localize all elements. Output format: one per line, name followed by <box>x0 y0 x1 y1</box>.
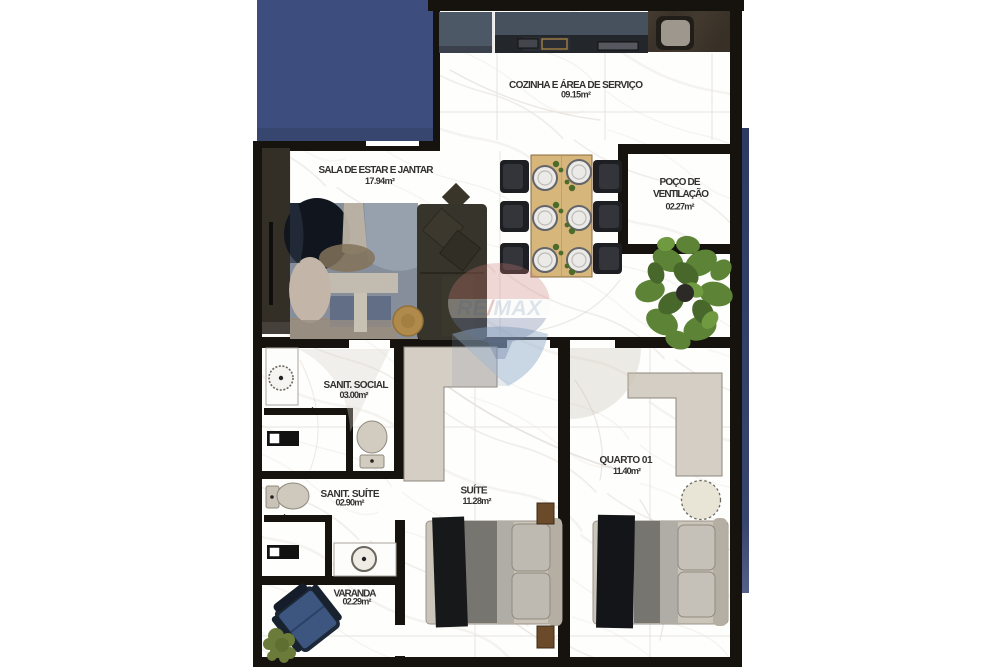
svg-text:11.28m²: 11.28m² <box>463 496 492 506</box>
svg-text:02.29m²: 02.29m² <box>343 597 372 607</box>
svg-text:SALA DE ESTAR E JANTAR: SALA DE ESTAR E JANTAR <box>319 165 435 176</box>
svg-text:11.40m²: 11.40m² <box>613 466 641 476</box>
svg-text:VENTILAÇÃO: VENTILAÇÃO <box>653 187 709 200</box>
svg-text:09.15m²: 09.15m² <box>561 90 591 100</box>
svg-text:SUÍTE: SUÍTE <box>461 484 488 497</box>
svg-text:02.27m²: 02.27m² <box>666 202 695 212</box>
svg-text:17.94m²: 17.94m² <box>365 176 395 186</box>
svg-text:POÇO DE: POÇO DE <box>660 177 701 188</box>
svg-text:RE/MAX: RE/MAX <box>457 297 543 320</box>
svg-text:02.90m²: 02.90m² <box>336 498 365 508</box>
svg-text:QUARTO 01: QUARTO 01 <box>600 455 653 466</box>
svg-text:03.00m²: 03.00m² <box>340 390 369 400</box>
